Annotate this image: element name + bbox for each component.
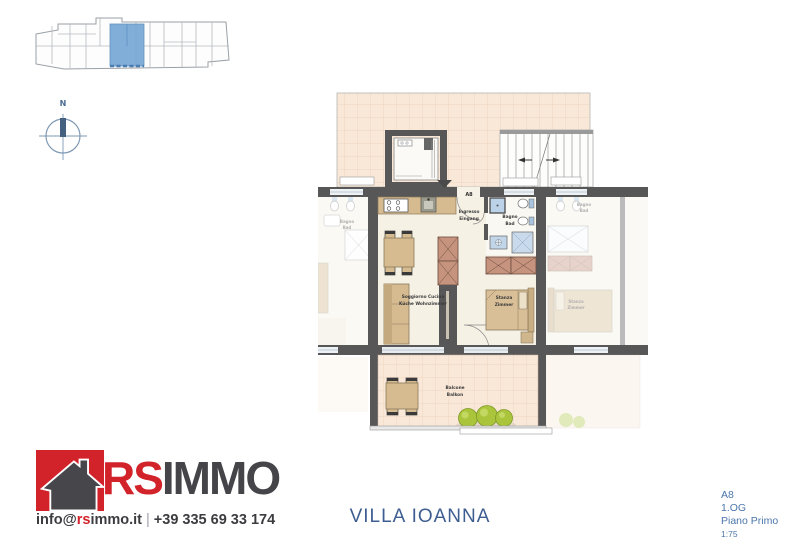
floor-plan-sheet: N — [0, 0, 800, 549]
neighbor-balcony-right — [546, 355, 640, 428]
divider-panel — [446, 291, 449, 339]
unit-info-scale: 1:75 — [721, 528, 778, 541]
unit-label: A8 — [465, 192, 473, 198]
contact-line: info@rsimmo.it|+39 335 69 33 174 — [36, 512, 275, 528]
room-label-balcony: Balcone — [445, 385, 464, 391]
pillow — [519, 292, 527, 309]
svg-text:Zimmer: Zimmer — [567, 305, 584, 310]
kitchen-counter — [378, 197, 456, 214]
compass-needle — [60, 118, 66, 137]
svg-text:Bad: Bad — [343, 225, 352, 230]
floor-slab-edge — [460, 428, 552, 434]
unit-info-floor-de: 1.OG — [721, 502, 778, 515]
balcony-wall-right — [538, 355, 546, 430]
brand-red-part: RS — [102, 452, 162, 504]
project-name: VILLA IOANNA — [300, 506, 540, 528]
email-suffix: immo.it — [90, 512, 142, 528]
building-overview-plan — [30, 12, 235, 80]
balcony-wall-left — [370, 355, 378, 430]
unit-info-unit: A8 — [721, 489, 778, 502]
neighbor-right-bath-label: Bagno — [577, 202, 591, 207]
contact-separator: | — [142, 512, 154, 528]
compass: N — [36, 94, 90, 164]
north-label: N — [60, 99, 67, 108]
neighbor-unit-right: Stanza Zimmer Bagno Bad — [546, 197, 648, 345]
svg-text:Bad: Bad — [580, 208, 589, 213]
svg-text:Bad: Bad — [505, 221, 514, 227]
neighbor-right-bedroom-label: Stanza — [568, 299, 584, 304]
right-wall — [536, 197, 546, 345]
brand-dark-part: IMMO — [162, 452, 279, 504]
room-label-entrance: Ingresso — [459, 209, 480, 215]
unit-info: A8 1.OG Piano Primo 1:75 — [721, 489, 778, 541]
svg-text:Eingang: Eingang — [459, 216, 479, 222]
svg-text:Küche Wohnzimmer: Küche Wohnzimmer — [399, 301, 448, 307]
wardrobe — [486, 257, 536, 274]
logo-house-icon — [39, 457, 105, 513]
phone-number: +39 335 69 33 174 — [154, 512, 275, 528]
left-wall — [368, 197, 378, 345]
bed-bench — [521, 332, 533, 343]
elevator — [385, 130, 447, 188]
email-prefix: info@ — [36, 512, 77, 528]
brand-wordmark: RSIMMO — [102, 455, 279, 501]
bath-wall-lower — [484, 224, 488, 240]
main-top-wall — [318, 187, 648, 197]
neighbor-unit-left: Bagno Bad — [318, 197, 372, 345]
rsimmo-logo: RSIMMO info@rsimmo.it|+39 335 69 33 174 — [36, 448, 296, 538]
highlighted-unit — [110, 24, 144, 66]
room-label-bath: Bagno — [502, 214, 517, 220]
tall-cabinet — [438, 237, 458, 285]
room-label-living: Soggiorno Cucina — [402, 294, 445, 300]
svg-text:Balkon: Balkon — [447, 392, 463, 398]
bath-wall-upper — [484, 197, 488, 213]
svg-text:Zimmer: Zimmer — [495, 302, 514, 308]
unit-info-floor-it: Piano Primo — [721, 515, 778, 528]
neighbor-balcony-left — [318, 357, 368, 412]
neighbor-left-bath-label: Bagno — [340, 219, 354, 224]
email-highlight: rs — [77, 512, 91, 528]
toilet — [518, 199, 528, 208]
sofa — [384, 284, 409, 344]
room-label-bedroom: Stanza — [496, 295, 513, 301]
floor-plan: Bagno Bad Stanza Zimmer Bagno Bad — [318, 78, 648, 440]
bidet — [518, 217, 528, 225]
